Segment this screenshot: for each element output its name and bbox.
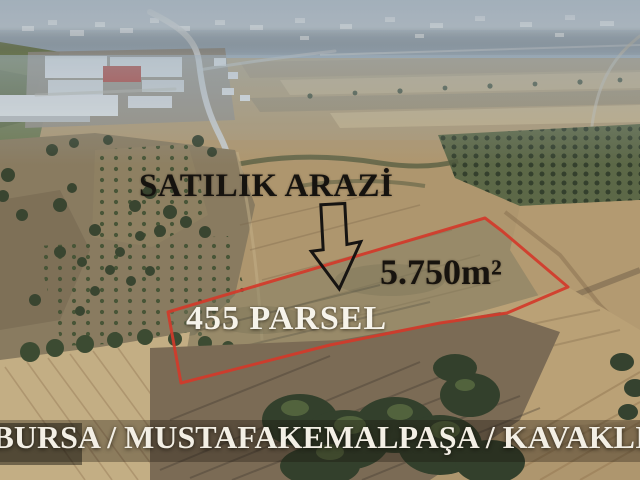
color-grade <box>0 0 640 480</box>
aerial-photo-scene <box>0 0 640 480</box>
parcel-number-label: 455 PARSEL <box>186 302 387 336</box>
sale-title: SATILIK ARAZİ <box>139 170 393 203</box>
location-banner: BURSA / MUSTAFAKEMALPAŞA / KAVAKLI <box>0 421 640 453</box>
land-sale-photo: SATILIK ARAZİ 5.750m² 455 PARSEL BURSA /… <box>0 0 640 480</box>
area-label: 5.750m² <box>380 254 502 290</box>
